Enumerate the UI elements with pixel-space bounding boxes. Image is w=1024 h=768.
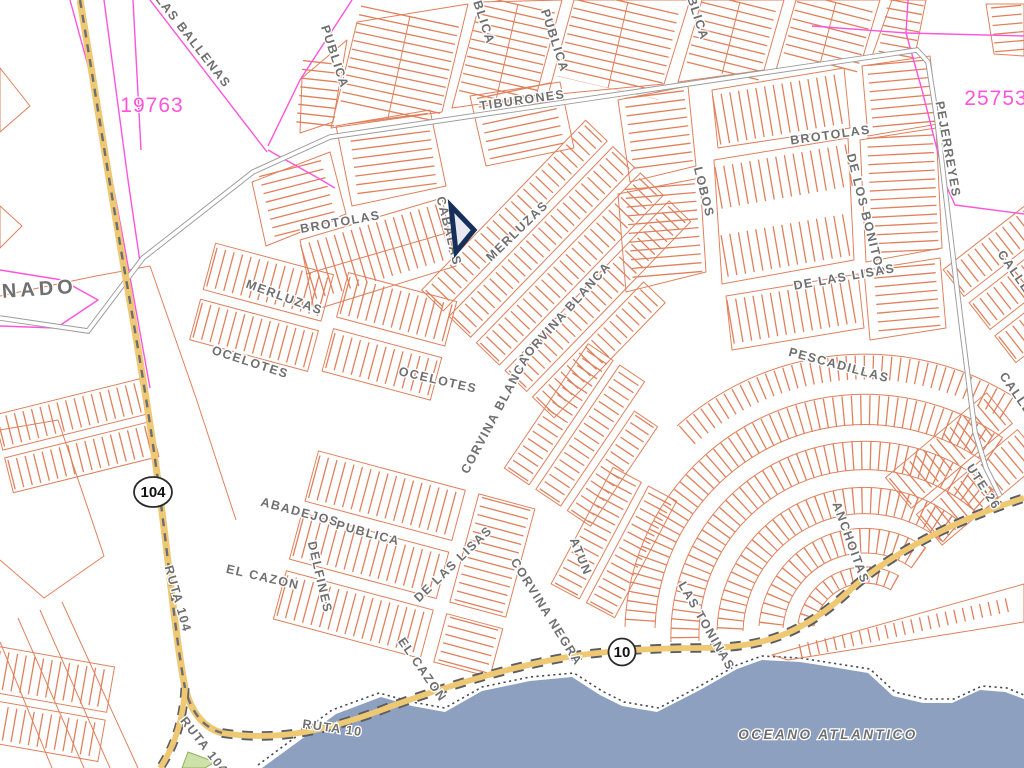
street-label-calle: CALLE <box>995 248 1024 296</box>
route-shield-10: 10 <box>609 639 636 666</box>
selected-parcel-marker[interactable] <box>451 206 474 252</box>
parcel-number-25753: 25753 <box>964 87 1024 110</box>
street-label-abadejos: ABADEJOS <box>259 495 341 529</box>
street-label-brotolas: BROTOLAS <box>789 122 871 147</box>
street-label-de-las-lisas: DE LAS LISAS <box>792 261 896 293</box>
street-label-brotolas: BROTOLAS <box>299 208 381 236</box>
street-label-corvina-blanca: CORVINA BLANCA <box>458 352 533 476</box>
street-label-el-cazon: EL CAZON <box>225 562 301 592</box>
street-label-ruta-104: RUTA 104 <box>162 564 194 634</box>
street-label-publica: PUBLICA <box>464 0 498 46</box>
route-shield-number: 10 <box>614 644 631 661</box>
route-shield-number: 104 <box>140 484 166 501</box>
map-canvas[interactable]: LAS BALLENASPUBLICAPUBLICAPUBLICAPUBLICA… <box>0 0 1024 768</box>
street-label-las-ballenas: LAS BALLENAS <box>153 0 234 90</box>
parcel-number-19763: 19763 <box>120 94 183 117</box>
street-label-ocelotes: OCELOTES <box>397 364 478 396</box>
area-label-oceano-atlantico: OCEANO ATLANTICO <box>738 727 918 742</box>
area-label-onado: ONADO <box>0 276 77 305</box>
street-label-calle: CALLE <box>997 370 1024 418</box>
street-label-las-toninas: LAS TONINAS <box>675 579 737 673</box>
street-label-publica: PUBLICA <box>335 518 402 548</box>
route-shield-104: 104 <box>134 477 172 507</box>
street-label-ocelotes: OCELOTES <box>210 343 290 381</box>
